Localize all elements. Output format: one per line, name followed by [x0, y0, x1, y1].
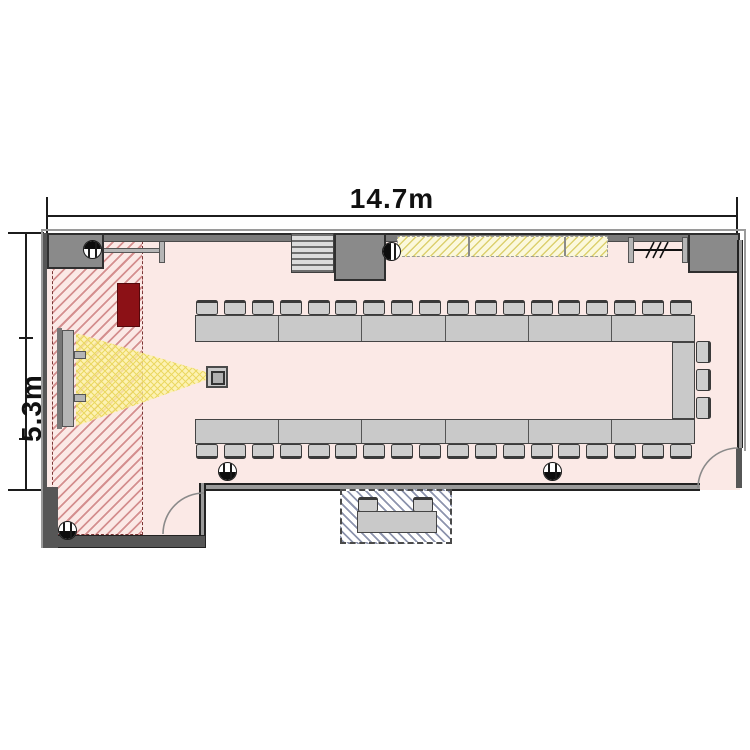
chair [413, 497, 433, 512]
fixture-fill [84, 241, 101, 249]
fixture-symbol [543, 462, 562, 481]
door-swing-arcs [0, 0, 750, 750]
fixture-symbol [83, 240, 102, 259]
chair [358, 497, 378, 512]
fixture-fill [59, 531, 76, 539]
fixture-symbol [58, 521, 77, 540]
fixture-fill [544, 472, 561, 480]
annex-chair-row [358, 497, 433, 512]
fixture-symbol [218, 462, 237, 481]
fixture-fill [219, 472, 236, 480]
annex-table [357, 511, 437, 533]
fixture-symbol [382, 242, 401, 261]
fixture-fill [383, 243, 391, 260]
floor-plan: 14.7m 5.3m [0, 0, 750, 750]
table-segment [358, 512, 436, 532]
